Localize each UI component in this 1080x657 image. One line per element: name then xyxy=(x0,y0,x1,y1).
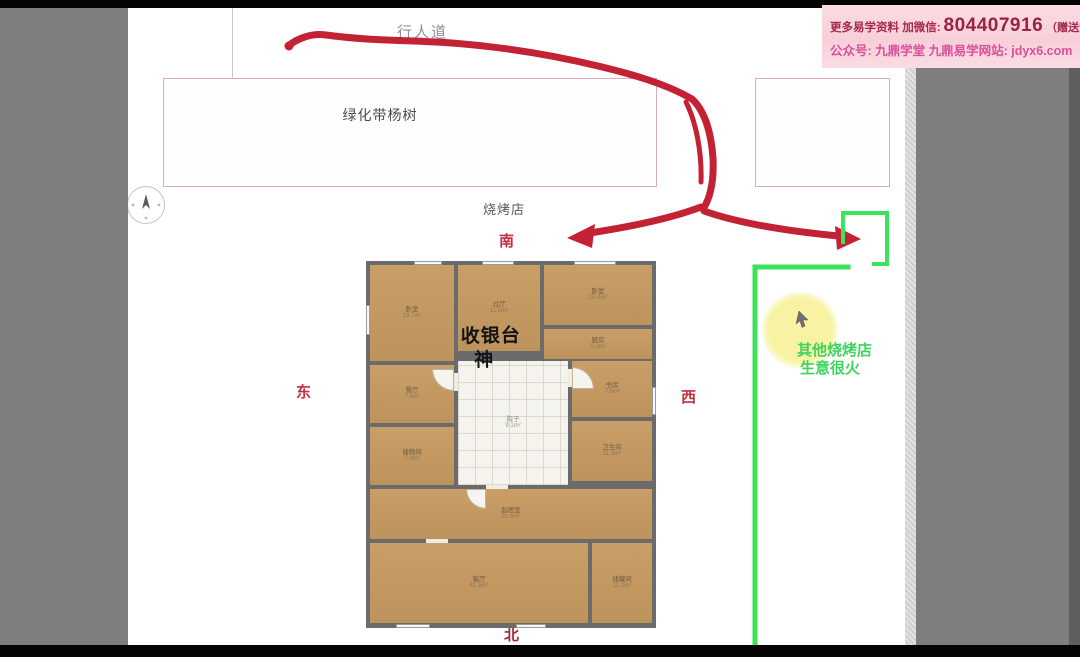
room-area: 7.5m² xyxy=(404,394,419,401)
floor-plan: 卧室13.7m²过厅11.5m²卧室15.4m²厨房5.3m²餐厅7.5m²储物… xyxy=(366,261,656,628)
other-bbq-note-line1: 其他烧烤店 xyxy=(797,342,872,360)
room-label: 卫生间 xyxy=(602,444,622,451)
right-arrowhead-icon xyxy=(835,226,861,250)
room-label: 卧室 xyxy=(406,306,419,313)
floorplan-room: 卧室13.7m² xyxy=(370,265,454,361)
banner-line1: 更多易学资料 加微信: 804407916 （赠送资料） xyxy=(830,15,1080,37)
room-label: 卧室 xyxy=(592,288,605,295)
window-marker xyxy=(574,261,616,265)
scrollbar-strip[interactable] xyxy=(905,8,916,645)
promo-banner: 更多易学资料 加微信: 804407916 （赠送资料） 公众号: 九鼎学堂 九… xyxy=(822,5,1080,68)
room-area: 7.9m² xyxy=(604,389,619,396)
compass-icon xyxy=(127,186,165,224)
room-label: 起居室 xyxy=(501,507,521,514)
room-area: 15.4m² xyxy=(589,295,608,302)
red-stroke-start-dot xyxy=(285,42,294,51)
video-frame: 行人道 绿化带杨树 烧烤店 南 东 西 北 卧室13.7m²过厅11.5m²卧室… xyxy=(0,0,1080,657)
right-gray-panel xyxy=(916,66,1080,645)
room-area: 11.5m² xyxy=(490,308,508,315)
west-label: 西 xyxy=(681,386,696,407)
cashier-note-line2: 神 xyxy=(474,348,521,373)
room-label: 院子 xyxy=(507,416,520,423)
room-area: 5.3m² xyxy=(590,344,605,351)
room-area: 9.1m² xyxy=(505,423,520,430)
right-edge-strip xyxy=(1069,66,1080,645)
cashier-note-line1: 收银台 xyxy=(461,324,521,349)
door-opening xyxy=(454,373,458,391)
banner-line1-prefix: 更多易学资料 加微信: xyxy=(830,19,941,35)
left-arrowhead-icon xyxy=(567,224,595,248)
window-marker xyxy=(366,305,370,335)
window-marker xyxy=(396,624,430,628)
window-marker xyxy=(414,261,442,265)
floorplan-room: 卧室15.4m² xyxy=(544,265,652,325)
other-bbq-note-line2: 生意很火 xyxy=(800,360,872,378)
room-area: 21.6m² xyxy=(502,514,521,521)
other-bbq-note: 其他烧烤店 生意很火 xyxy=(797,342,872,378)
walkway-label: 行人道 xyxy=(397,21,448,42)
green-belt-label: 绿化带杨树 xyxy=(164,105,596,125)
room-label: 餐厅 xyxy=(406,387,419,394)
bbq-shop-label: 烧烤店 xyxy=(483,199,525,218)
window-marker xyxy=(652,387,656,415)
floorplan-room: 储物间7.9m² xyxy=(370,427,454,485)
room-label: 书房 xyxy=(606,382,619,389)
right-lot-box xyxy=(755,78,890,187)
floorplan-room: 卫生间11.3m² xyxy=(572,421,652,481)
room-label: 过厅 xyxy=(493,301,506,308)
south-label: 南 xyxy=(499,230,514,251)
bottom-black-bar xyxy=(0,645,1080,657)
room-area: 11.3m² xyxy=(603,451,621,458)
room-area: 11.2m² xyxy=(613,583,631,590)
room-label: 厨房 xyxy=(592,337,605,344)
east-label: 东 xyxy=(296,381,311,402)
door-opening xyxy=(426,539,448,543)
compass-needle-icon xyxy=(128,187,164,223)
green-belt-box: 绿化带杨树 xyxy=(163,78,657,187)
floorplan-room: 厨房5.3m² xyxy=(544,329,652,359)
banner-line1-suffix: （赠送资料） xyxy=(1046,19,1080,35)
cashier-altar-note: 收银台 神 xyxy=(461,324,522,373)
floorplan-room: 起居室21.6m² xyxy=(370,489,652,539)
floorplan-room: 院子9.1m² xyxy=(458,361,568,485)
floorplan-room: 客厅41.5m² xyxy=(370,543,588,623)
left-gray-panel xyxy=(0,8,128,645)
room-label: 储物间 xyxy=(402,449,422,456)
room-area: 7.9m² xyxy=(404,456,419,463)
floorplan-room: 储藏间11.2m² xyxy=(592,543,652,623)
floorplan-room: 书房7.9m² xyxy=(572,361,652,417)
room-area: 13.7m² xyxy=(403,313,422,320)
room-label: 储藏间 xyxy=(612,576,632,583)
wechat-number: 804407916 xyxy=(944,15,1044,37)
window-marker xyxy=(482,261,514,265)
window-marker xyxy=(516,624,546,628)
page-boundary-line xyxy=(232,8,233,78)
room-label: 客厅 xyxy=(473,576,486,583)
banner-line2: 公众号: 九鼎学堂 九鼎易学网站: jdyx6.com xyxy=(830,40,1080,59)
door-opening xyxy=(486,485,508,489)
room-area: 41.5m² xyxy=(470,583,489,590)
